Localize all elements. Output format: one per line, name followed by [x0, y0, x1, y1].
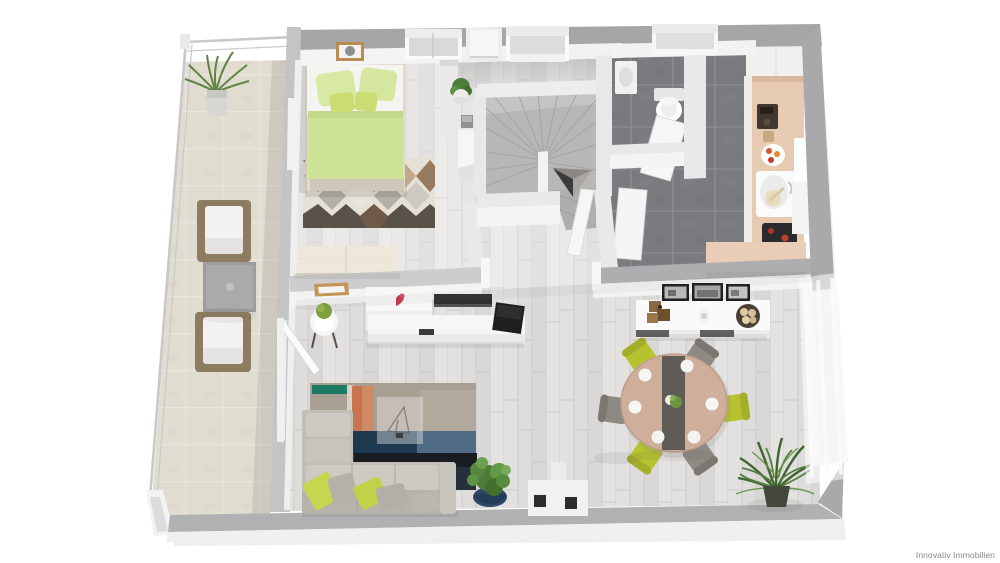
svg-text:Innovativ Immobilien: Innovativ Immobilien [916, 550, 995, 560]
